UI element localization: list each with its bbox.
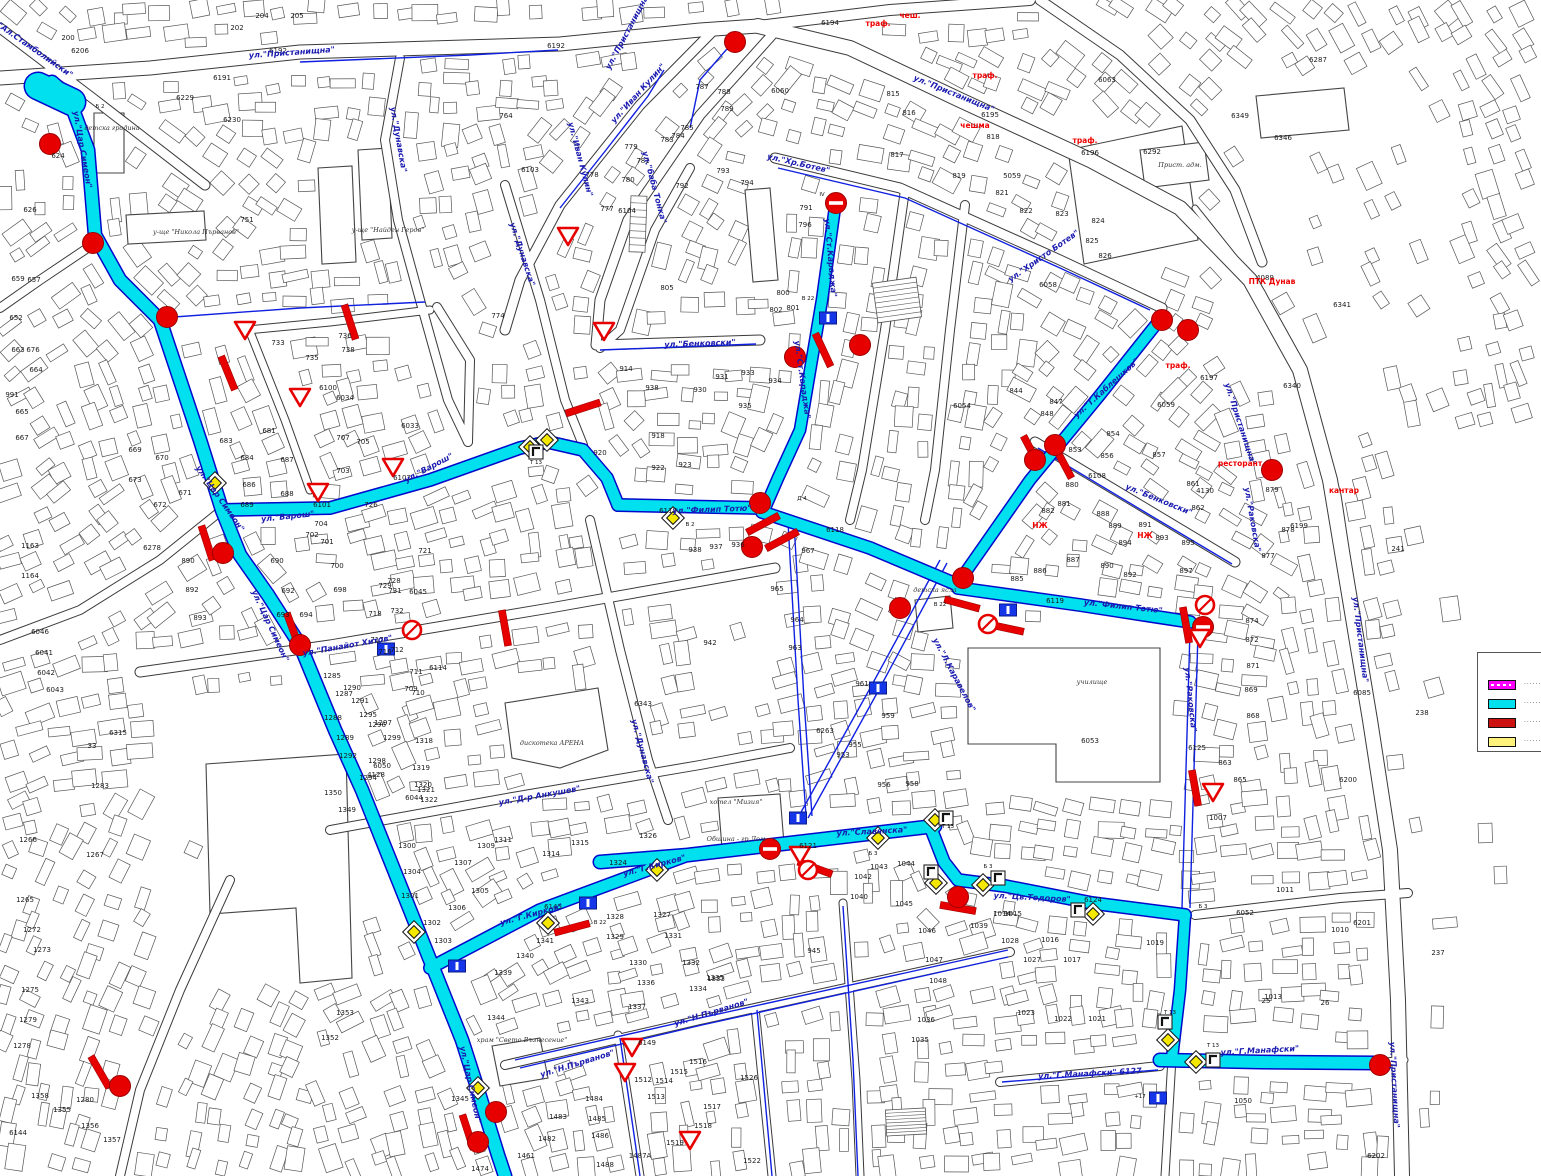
- building: [270, 676, 282, 686]
- building: [681, 1101, 695, 1127]
- sign-annotation: В 22: [594, 920, 607, 926]
- building: [468, 755, 481, 765]
- parcel-number: 733: [271, 339, 284, 347]
- street: [1165, 1058, 1172, 1176]
- building: [0, 535, 13, 551]
- building: [133, 986, 156, 1009]
- building: [990, 433, 1007, 451]
- building: [216, 3, 236, 15]
- building: [1122, 970, 1138, 985]
- parcel-number: 6114: [429, 664, 447, 672]
- building: [1251, 1128, 1268, 1144]
- building: [237, 148, 257, 167]
- building: [1255, 816, 1274, 830]
- parcel-number: 205: [290, 12, 303, 20]
- sign-annotation: Б 2: [95, 104, 104, 110]
- building: [681, 388, 694, 402]
- building: [557, 1021, 570, 1033]
- building: [266, 174, 285, 193]
- building: [1466, 54, 1486, 79]
- building: [1073, 335, 1099, 364]
- parcel-number: 6192: [547, 42, 565, 50]
- parcel-number: 848: [1040, 410, 1053, 418]
- building: [1148, 586, 1163, 598]
- building: [1218, 482, 1234, 496]
- building: [1487, 193, 1506, 219]
- building: [830, 1012, 840, 1031]
- parcel-number: 6085: [1353, 689, 1371, 697]
- parcel-number: 6042: [37, 669, 55, 677]
- building: [282, 269, 309, 283]
- building: [1098, 870, 1113, 884]
- building: [234, 76, 248, 86]
- building: [554, 944, 576, 964]
- building: [1195, 562, 1211, 577]
- building: [709, 943, 732, 963]
- building: [339, 1087, 359, 1109]
- parcel-number: 930: [693, 386, 706, 394]
- building: [676, 627, 697, 643]
- building: [170, 414, 182, 429]
- building: [138, 364, 154, 384]
- building: [1161, 267, 1189, 287]
- building: [736, 958, 751, 978]
- poi-label: хотел "Мизия": [710, 798, 763, 806]
- building: [1273, 1007, 1294, 1023]
- parcel-number: 816: [902, 109, 916, 117]
- building: [1067, 68, 1086, 88]
- building: [546, 623, 569, 637]
- parcel-number: 774: [491, 312, 505, 320]
- building: [1404, 526, 1424, 546]
- building: [867, 748, 885, 768]
- building: [284, 1146, 305, 1172]
- parcel-number: 26: [1321, 999, 1330, 1007]
- parcel-number: 700: [330, 562, 343, 570]
- parcel-number: 788: [717, 88, 730, 96]
- building: [99, 360, 117, 385]
- building: [489, 559, 505, 577]
- building: [894, 406, 913, 428]
- parcel-number: 673: [128, 476, 141, 484]
- building: [96, 340, 118, 363]
- no-entry-sign-icon: [826, 193, 847, 214]
- parcel-number: 1339: [494, 969, 512, 977]
- legend-item: ··········: [1488, 694, 1541, 713]
- building: [345, 1159, 361, 1176]
- building: [477, 388, 491, 405]
- building: [987, 203, 1006, 217]
- parcel-number: 718: [368, 610, 381, 618]
- building: [910, 528, 921, 547]
- building: [688, 2, 704, 13]
- building: [15, 170, 25, 190]
- building: [492, 480, 517, 503]
- building: [1478, 823, 1493, 843]
- building: [1426, 388, 1449, 412]
- building: [213, 239, 234, 261]
- building: [1268, 696, 1288, 722]
- building: [1221, 960, 1231, 978]
- red-point-sign-icon: [1370, 1055, 1391, 1076]
- building: [451, 166, 470, 181]
- building: [10, 248, 25, 262]
- building: [126, 834, 150, 860]
- building: [82, 457, 97, 480]
- building: [576, 51, 601, 67]
- building: [479, 635, 492, 648]
- building: [1089, 797, 1115, 813]
- building: [985, 1061, 1003, 1074]
- parcel-number: 1517: [703, 1103, 721, 1111]
- building: [177, 263, 201, 287]
- parcel-number: 794: [740, 179, 754, 187]
- building: [1375, 451, 1394, 479]
- building: [1116, 1156, 1136, 1176]
- parcel-number: 877: [1261, 552, 1274, 560]
- building: [323, 391, 337, 405]
- building: [802, 1148, 821, 1174]
- building: [113, 82, 126, 99]
- building: [75, 894, 94, 916]
- building: [892, 801, 911, 815]
- building: [635, 468, 648, 482]
- building: [473, 190, 494, 215]
- building: [1095, 310, 1118, 329]
- building: [524, 384, 543, 408]
- building: [1039, 361, 1054, 377]
- parcel-number: 1007: [1209, 814, 1227, 822]
- building: [1179, 32, 1196, 49]
- building: [0, 186, 12, 210]
- building: [503, 410, 519, 427]
- building: [1059, 1133, 1088, 1155]
- building: [1219, 508, 1241, 526]
- parcel-number: 780: [621, 176, 634, 184]
- building: [903, 751, 929, 761]
- building: [528, 466, 544, 477]
- building: [362, 1035, 386, 1062]
- building: [102, 627, 119, 645]
- building: [445, 58, 469, 69]
- building: [1494, 866, 1507, 884]
- building: [1119, 579, 1141, 595]
- building: [701, 559, 714, 570]
- parcel-number: 789: [720, 105, 733, 113]
- parcel-number: 626: [23, 206, 37, 214]
- building: [1282, 1135, 1299, 1144]
- building: [705, 777, 727, 792]
- building: [1142, 555, 1162, 573]
- building: [1219, 745, 1233, 757]
- parcel-number: 942: [703, 639, 716, 647]
- building: [366, 337, 389, 354]
- building: [1307, 247, 1323, 266]
- building: [1021, 97, 1038, 114]
- parcel-number: 692: [281, 587, 294, 595]
- map-legend: · · · · · ······························…: [1477, 652, 1541, 752]
- building: [867, 798, 881, 814]
- building: [703, 117, 726, 142]
- parcel-number: 1050: [1234, 1097, 1252, 1105]
- building: [374, 4, 388, 19]
- building: [1458, 336, 1472, 351]
- building: [450, 911, 474, 930]
- crossing-sign-icon: [1000, 604, 1017, 616]
- building: [159, 120, 186, 144]
- building: [865, 573, 886, 591]
- building: [217, 270, 237, 281]
- building: [444, 729, 461, 746]
- building: [466, 820, 494, 841]
- building: [373, 360, 388, 372]
- no-stopping-sign-icon: [403, 621, 421, 639]
- building: [650, 720, 663, 735]
- building: [1199, 1164, 1212, 1176]
- legend-swatch-icon: [1488, 718, 1516, 728]
- building: [512, 626, 539, 645]
- parcel-number: 779: [624, 143, 637, 151]
- building: [242, 120, 262, 136]
- building: [414, 986, 432, 1008]
- red-point-sign-icon: [213, 543, 234, 564]
- building: [912, 118, 939, 137]
- building: [420, 58, 437, 73]
- crossing-sign-icon: [820, 312, 837, 324]
- parcel-number: 6033: [401, 422, 419, 430]
- building: [418, 554, 434, 567]
- building: [126, 743, 153, 759]
- parcel-number: 6343: [634, 700, 652, 708]
- building: [1068, 871, 1091, 891]
- poi-label-red: чешма: [960, 121, 989, 130]
- parcel-number: 964: [790, 616, 804, 624]
- parcel-number: 1027: [1023, 956, 1041, 964]
- building: [829, 380, 845, 404]
- map-canvas[interactable]: 2002022042056206619261926191622962307516…: [0, 0, 1541, 1176]
- building: [512, 993, 540, 1013]
- parcel-number: 33: [88, 742, 97, 750]
- parcel-number: 1279: [19, 1016, 37, 1024]
- red-point-sign-icon: [1152, 310, 1173, 331]
- building: [839, 1129, 848, 1152]
- building: [809, 425, 822, 450]
- building: [1432, 917, 1457, 929]
- parcel-number: 1483: [549, 1113, 567, 1121]
- parcel-number: 735: [305, 354, 318, 362]
- building: [1302, 938, 1313, 955]
- building: [430, 248, 443, 267]
- parcel-number: 1318: [415, 737, 433, 745]
- info-board-icon: [1071, 903, 1085, 917]
- building: [526, 366, 545, 381]
- building: [1359, 815, 1372, 840]
- parcel-number: 6349: [1231, 112, 1249, 120]
- parcel-number: 664: [29, 366, 43, 374]
- building: [1222, 575, 1248, 598]
- building: [131, 720, 155, 737]
- street: [1195, 893, 1408, 915]
- building: [1063, 319, 1086, 339]
- building: [675, 672, 694, 692]
- building: [787, 1050, 796, 1073]
- building: [1204, 1016, 1229, 1033]
- building: [618, 968, 637, 981]
- building: [924, 347, 935, 359]
- building: [1229, 990, 1242, 1012]
- building: [136, 632, 155, 649]
- building: [1120, 826, 1136, 839]
- building: [748, 299, 768, 308]
- parcel-number: 1043: [870, 863, 888, 871]
- building: [185, 127, 205, 147]
- building: [789, 1161, 805, 1176]
- building: [237, 379, 260, 403]
- info-board-icon: [939, 811, 953, 825]
- building: [837, 245, 854, 265]
- building: [879, 935, 895, 953]
- parcel-number: 1512: [634, 1076, 652, 1084]
- building: [1112, 1034, 1136, 1046]
- building: [1509, 0, 1534, 27]
- building: [1363, 838, 1381, 860]
- parcel-number: 659: [11, 275, 24, 283]
- building: [830, 871, 847, 894]
- building: [51, 282, 80, 309]
- building: [991, 281, 1012, 308]
- building: [479, 322, 497, 338]
- parcel-number: 6058: [1039, 281, 1057, 289]
- building: [291, 75, 305, 86]
- building: [1141, 459, 1159, 476]
- building: [622, 609, 633, 626]
- building: [46, 344, 68, 362]
- building: [830, 794, 856, 808]
- building: [1332, 669, 1349, 694]
- building: [73, 330, 99, 357]
- building: [342, 404, 363, 428]
- building: [500, 80, 513, 96]
- parcel-number: 882: [1041, 507, 1054, 515]
- building: [1015, 535, 1034, 558]
- building: [974, 297, 992, 313]
- building: [528, 117, 552, 143]
- building: [1365, 619, 1380, 639]
- poi-label-red: кантар: [1329, 486, 1360, 495]
- building: [138, 385, 152, 401]
- building: [1503, 310, 1523, 331]
- building: [387, 1008, 404, 1031]
- building: [207, 1108, 221, 1125]
- parcel-number: 920: [593, 449, 606, 457]
- building: [1116, 934, 1142, 948]
- rowhouse-hatch: [885, 1108, 926, 1136]
- building: [489, 529, 508, 545]
- building: [1224, 146, 1244, 167]
- building: [694, 868, 720, 884]
- building: [127, 94, 146, 110]
- building: [454, 678, 470, 697]
- building: [681, 787, 706, 808]
- building: [370, 1015, 390, 1040]
- parcel-number: 684: [240, 454, 254, 462]
- building: [578, 625, 593, 639]
- building: [281, 1114, 298, 1130]
- building: [245, 1109, 263, 1130]
- building: [735, 1102, 748, 1118]
- parcel-number: 1345: [451, 1095, 469, 1103]
- red-point-sign-icon: [468, 1132, 489, 1153]
- parcel-number: 1267: [86, 851, 104, 859]
- parcel-number: 879: [1265, 486, 1278, 494]
- street-name: ул."Бенковски": [664, 338, 736, 349]
- building: [444, 774, 467, 788]
- red-point-sign-icon: [850, 335, 871, 356]
- building: [459, 659, 483, 676]
- building: [1203, 969, 1221, 983]
- poi-label: Прист. адм.: [1157, 161, 1201, 169]
- building: [319, 1144, 344, 1173]
- building: [604, 814, 631, 833]
- parcel-number: 6053: [1081, 737, 1099, 745]
- building: [110, 405, 128, 422]
- building: [311, 270, 330, 289]
- building: [26, 776, 48, 793]
- building: [1227, 45, 1252, 68]
- building: [548, 818, 571, 838]
- building: [760, 963, 781, 982]
- building: [1297, 554, 1314, 582]
- building: [583, 938, 602, 956]
- building: [895, 482, 911, 502]
- building: [415, 824, 433, 843]
- parcel-number: 955: [848, 741, 861, 749]
- parcel-number: 688: [280, 490, 293, 498]
- building: [984, 407, 1003, 427]
- building: [1362, 29, 1381, 53]
- parcel-number: 1164: [21, 572, 39, 580]
- building: [734, 770, 760, 788]
- building: [495, 846, 509, 860]
- building: [1332, 913, 1350, 922]
- building: [650, 620, 678, 639]
- building: [834, 554, 853, 575]
- building: [786, 214, 796, 232]
- building: [556, 488, 571, 503]
- building: [156, 1086, 172, 1107]
- parcel-number: 1334: [689, 985, 707, 993]
- building: [778, 694, 805, 714]
- building: [697, 137, 722, 164]
- building: [855, 598, 882, 620]
- building: [393, 1037, 412, 1054]
- building: [908, 150, 935, 167]
- building: [442, 225, 457, 240]
- parcel-number: 817: [890, 151, 903, 159]
- building: [1281, 987, 1304, 1003]
- building: [731, 480, 753, 494]
- parcel-number: 6315: [109, 729, 127, 737]
- building: [704, 292, 725, 307]
- parcel-number: 6103: [521, 166, 539, 174]
- building: [624, 411, 644, 431]
- building: [257, 984, 280, 1007]
- building: [859, 198, 878, 214]
- building: [98, 920, 119, 941]
- building: [1365, 248, 1380, 264]
- building: [369, 954, 383, 975]
- parcel-number: 6263: [816, 727, 834, 735]
